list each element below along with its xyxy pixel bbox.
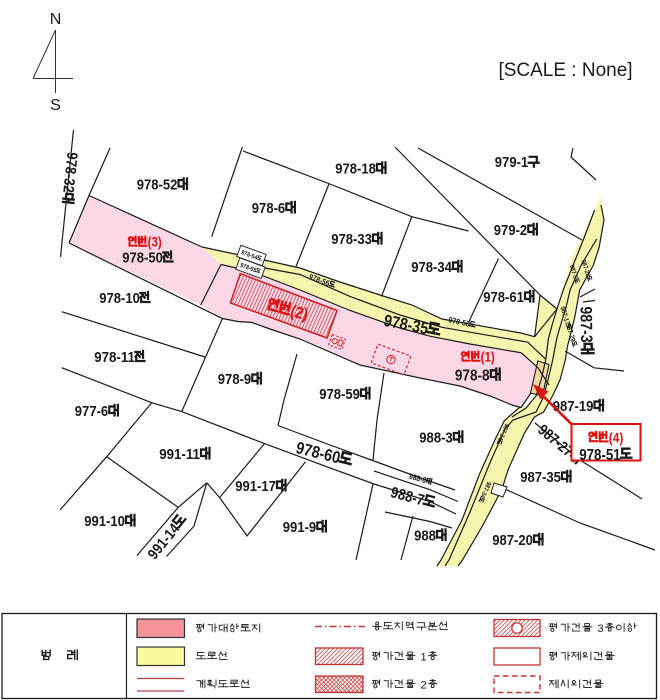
svg-text:991-11: 991-11 bbox=[159, 446, 200, 463]
svg-text:988: 988 bbox=[414, 528, 436, 545]
svg-text:977-6: 977-6 bbox=[75, 403, 108, 420]
svg-text:(1): (1) bbox=[481, 350, 495, 365]
svg-text:978-9: 978-9 bbox=[218, 371, 251, 388]
svg-text:991-9: 991-9 bbox=[283, 519, 316, 536]
svg-text:(3): (3) bbox=[148, 235, 162, 250]
svg-text:[SCALE : None]: [SCALE : None] bbox=[498, 60, 632, 81]
svg-text:S: S bbox=[50, 97, 61, 114]
svg-text:2: 2 bbox=[421, 679, 428, 691]
svg-text:991-10: 991-10 bbox=[84, 513, 125, 530]
svg-text:978-50: 978-50 bbox=[122, 250, 163, 267]
svg-text:979-1: 979-1 bbox=[495, 154, 529, 171]
svg-text:978-11: 978-11 bbox=[94, 349, 135, 366]
svg-text:(4): (4) bbox=[609, 429, 624, 445]
svg-text:978-61: 978-61 bbox=[483, 289, 524, 306]
svg-text:3: 3 bbox=[598, 623, 605, 635]
svg-text:N: N bbox=[50, 11, 62, 28]
svg-text:978-18: 978-18 bbox=[335, 161, 376, 178]
svg-text:978-10: 978-10 bbox=[99, 290, 140, 307]
svg-text:988-3: 988-3 bbox=[419, 430, 452, 447]
svg-text:987-20: 987-20 bbox=[492, 532, 533, 549]
svg-text:978-33: 978-33 bbox=[331, 231, 372, 248]
svg-text:1: 1 bbox=[421, 651, 428, 663]
svg-text:978-52: 978-52 bbox=[137, 177, 178, 194]
svg-text:991-17: 991-17 bbox=[235, 478, 276, 495]
svg-text:987-35: 987-35 bbox=[520, 469, 561, 486]
svg-text:978-51: 978-51 bbox=[579, 447, 621, 464]
svg-text:978-8: 978-8 bbox=[455, 367, 490, 384]
svg-text:978-6: 978-6 bbox=[252, 200, 285, 217]
svg-text:979-2: 979-2 bbox=[494, 222, 527, 239]
svg-text:987-3: 987-3 bbox=[576, 306, 595, 343]
svg-text:978-59: 978-59 bbox=[319, 386, 360, 403]
svg-text:978-34: 978-34 bbox=[411, 259, 452, 276]
